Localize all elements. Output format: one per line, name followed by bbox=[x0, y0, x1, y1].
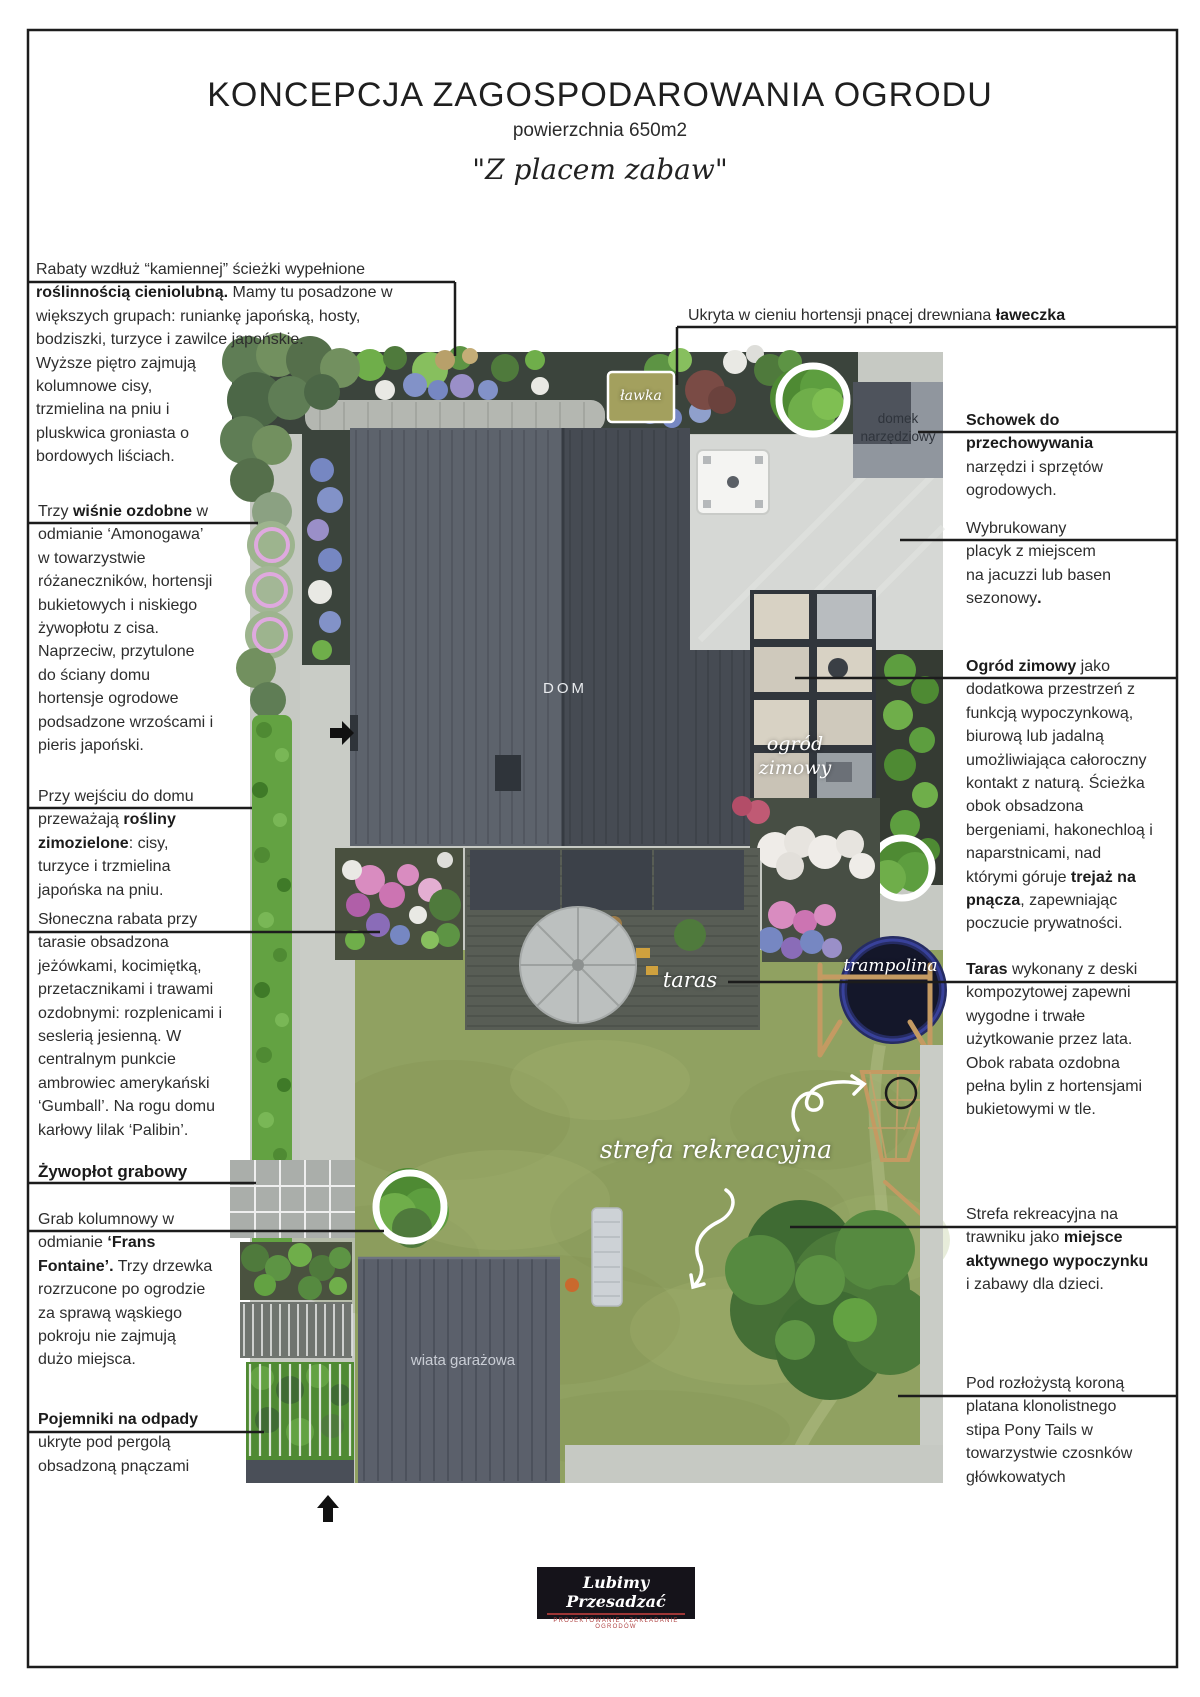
outdoor-sofa bbox=[470, 850, 560, 910]
label-domek-narzedziowy: domek narzędziowy bbox=[848, 410, 948, 446]
label-dom: DOM bbox=[525, 680, 605, 697]
note-platan: Pod rozłożystą koroną platana klonolistn… bbox=[966, 1372, 1178, 1489]
label-strefa-rekreacyjna: strefa rekreacyjna bbox=[596, 1135, 836, 1164]
studio-logo: Lubimy Przesadzać PROJEKTOWANIE I ZAKŁAD… bbox=[537, 1567, 695, 1619]
logo-tagline: PROJEKTOWANIE I ZAKŁADANIE OGRODÓW bbox=[537, 1618, 695, 1630]
note-wejscie: Przy wejściu do domu przeważają rośliny … bbox=[38, 785, 248, 902]
roof-skylight bbox=[495, 755, 521, 791]
label-lawka: ławka bbox=[606, 388, 676, 404]
label-taras: taras bbox=[655, 968, 725, 992]
logo-divider bbox=[547, 1613, 685, 1615]
terrace-deck bbox=[465, 848, 760, 1030]
page-title: KONCEPCJA ZAGOSPODAROWANIA OGRODU bbox=[0, 76, 1200, 115]
page-tagline: "Z placem zabaw" bbox=[0, 153, 1200, 186]
logo-name: Lubimy Przesadzać bbox=[537, 1573, 695, 1611]
bottom-path bbox=[565, 1445, 943, 1483]
note-strefa: Strefa rekreacyjna na trawniku jako miej… bbox=[966, 1203, 1178, 1297]
note-pojemniki: Pojemniki na odpady ukryte pod pergolą o… bbox=[38, 1408, 253, 1478]
note-ogrod-zimowy: Ogród zimowy jako dodatkowa przestrzeń z… bbox=[966, 655, 1178, 936]
label-wiata-garazowa: wiata garażowa bbox=[398, 1352, 528, 1369]
note-taras: Taras wykonany z deski kompozytowej zape… bbox=[966, 958, 1178, 1122]
note-placyk: Wybrukowany placyk z miejscem na jacuzzi… bbox=[966, 517, 1178, 611]
orange-ball bbox=[565, 1278, 579, 1292]
garage-carport bbox=[358, 1257, 560, 1483]
north-arrow-icon bbox=[317, 1495, 339, 1522]
note-rabaty: Rabaty wzdłuż “kamiennej” ścieżki wypełn… bbox=[36, 258, 468, 469]
label-trampolina: trampolina bbox=[843, 956, 938, 976]
label-ogrod-zimowy: ogród zimowy bbox=[755, 732, 835, 780]
note-laweczka: Ukryta w cieniu hortensji pnącej drewnia… bbox=[688, 304, 1158, 327]
note-schowek: Schowek do przechowywania narzędzi i spr… bbox=[966, 409, 1178, 503]
sunny-bed bbox=[335, 848, 463, 960]
right-path bbox=[920, 1045, 943, 1445]
note-grab: Grab kolumnowy w odmianie ‘Frans Fontain… bbox=[38, 1208, 248, 1372]
note-zywoplot: Żywopłot grabowy bbox=[38, 1160, 258, 1183]
potted-shrub bbox=[674, 919, 706, 951]
patio-umbrella bbox=[520, 907, 636, 1023]
garden-concept-poster: KONCEPCJA ZAGOSPODAROWANIA OGRODU powier… bbox=[0, 0, 1200, 1697]
pergola-bins bbox=[246, 1362, 354, 1483]
note-sloneczna: Słoneczna rabata przy tarasie obsadzona … bbox=[38, 908, 258, 1142]
note-wisnie: Trzy wiśnie ozdobne w odmianie ‘Amonogaw… bbox=[38, 500, 253, 757]
page-subtitle: powierzchnia 650m2 bbox=[0, 120, 1200, 142]
